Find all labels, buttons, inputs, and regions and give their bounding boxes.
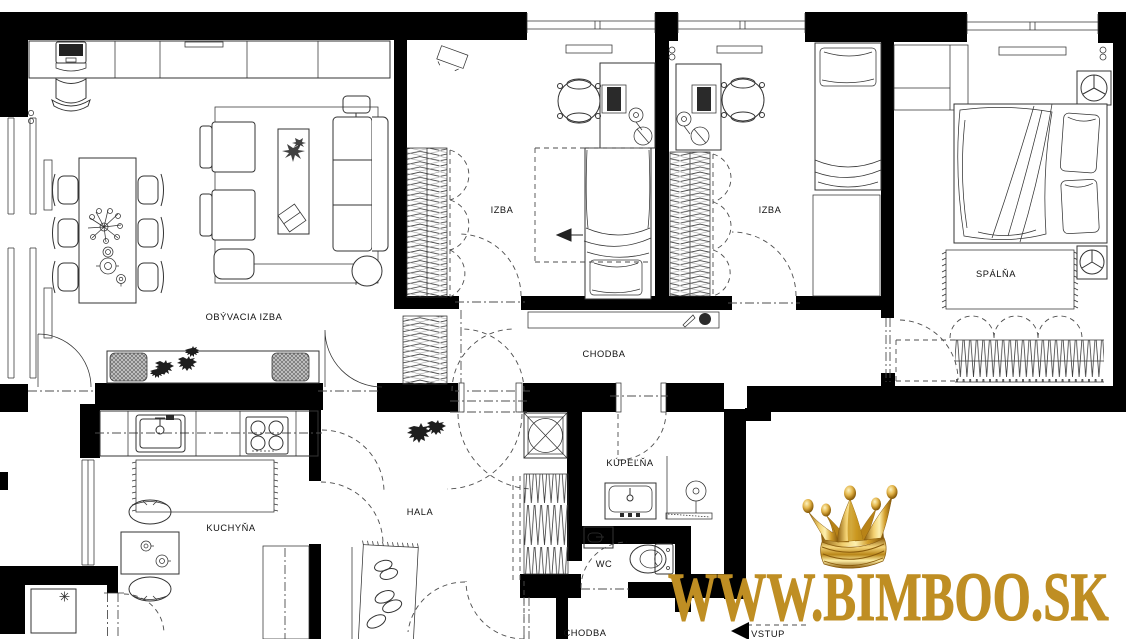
svg-text:SPÁLŇA: SPÁLŇA <box>976 269 1016 279</box>
svg-text:WWW.BIMBOO.SK: WWW.BIMBOO.SK <box>668 559 1109 635</box>
svg-text:CHODBA: CHODBA <box>563 628 606 638</box>
svg-text:CHODBA: CHODBA <box>582 349 625 359</box>
svg-text:IZBA: IZBA <box>491 205 514 215</box>
svg-text:KÚPEĽŇA: KÚPEĽŇA <box>606 458 654 468</box>
svg-text:IZBA: IZBA <box>759 205 782 215</box>
svg-text:HALA: HALA <box>407 507 434 517</box>
svg-text:WC: WC <box>596 559 613 569</box>
svg-text:OBÝVACIA IZBA: OBÝVACIA IZBA <box>206 312 283 322</box>
svg-text:KUCHYŇA: KUCHYŇA <box>206 523 256 533</box>
